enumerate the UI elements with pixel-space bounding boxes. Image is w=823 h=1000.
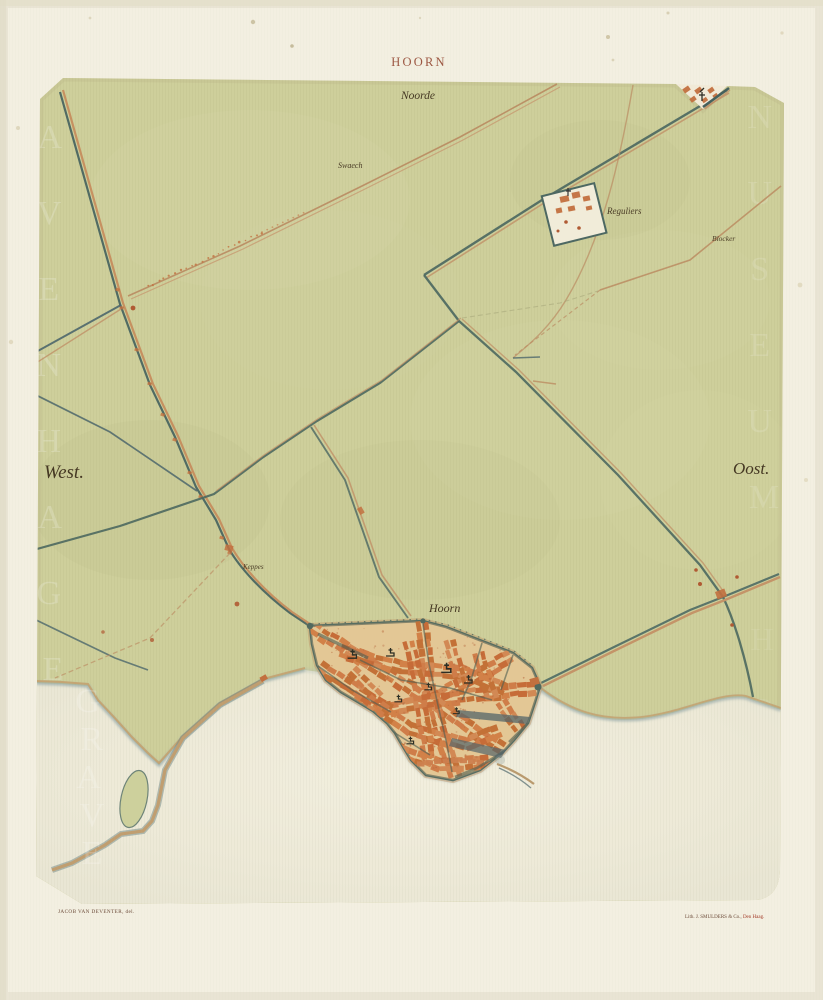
svg-text:Reguliers: Reguliers	[606, 206, 642, 216]
svg-text:West.: West.	[44, 462, 84, 483]
svg-text:Blocker: Blocker	[712, 234, 735, 243]
svg-text:JACOB VAN DEVENTER, del.: JACOB VAN DEVENTER, del.	[58, 909, 135, 915]
svg-text:Lith. J. SMULDERS & Co., Den H: Lith. J. SMULDERS & Co., Den Haag.	[685, 915, 764, 920]
svg-text:HOORN: HOORN	[391, 55, 446, 69]
svg-text:Oost.: Oost.	[733, 459, 769, 478]
svg-text:Hoorn: Hoorn	[428, 601, 460, 615]
svg-text:Swaech: Swaech	[338, 161, 362, 170]
svg-text:Noorde: Noorde	[400, 90, 435, 102]
svg-text:Keppes: Keppes	[242, 563, 264, 571]
